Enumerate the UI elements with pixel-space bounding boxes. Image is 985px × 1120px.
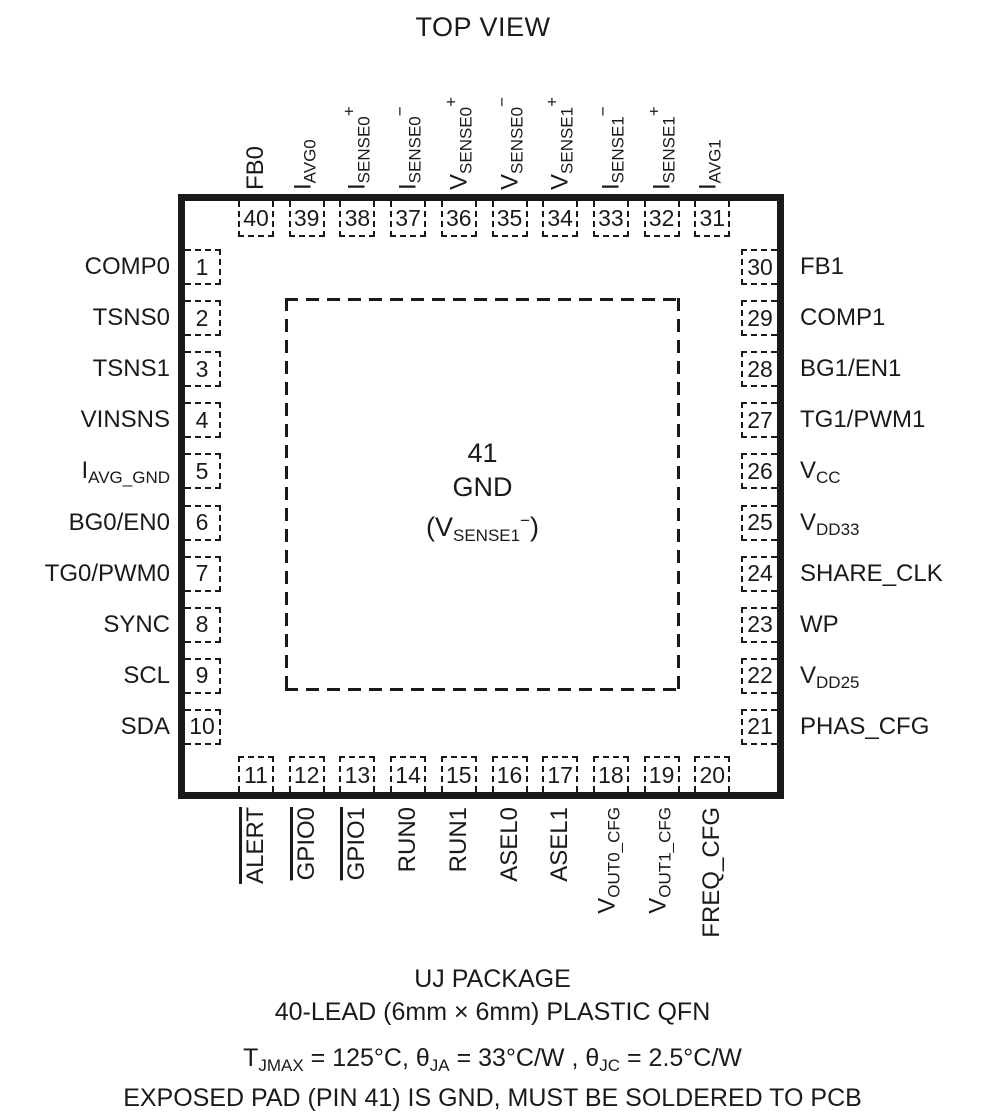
pin-number: 14 [395, 762, 421, 789]
pin-label: IAVG0 [291, 139, 322, 190]
label-part: SYNC [103, 611, 170, 638]
label-part: V [800, 457, 816, 484]
pin-number: 28 [747, 356, 773, 383]
label-part: ALERT [242, 807, 269, 884]
label-part: V [644, 898, 671, 914]
pin-box: 15 [441, 756, 477, 792]
pin-label: BG1/EN1 [800, 353, 984, 385]
pin-label: RUN0 [396, 807, 420, 872]
pin-box: 39 [289, 201, 325, 237]
label-part: ASEL0 [496, 807, 523, 882]
label-part: SHARE_CLK [800, 560, 943, 587]
pin-number: 25 [747, 509, 773, 536]
pin-box: 25 [741, 505, 777, 541]
pin-box: 34 [542, 201, 578, 237]
pin-label: VOUT0_CFG [595, 807, 626, 914]
pin-number: 34 [547, 205, 573, 232]
pin-box: 6 [185, 505, 221, 541]
label-part: SCL [123, 662, 170, 689]
pin-label: ISENSE1+ [642, 106, 681, 190]
pin-label: FB0 [244, 146, 268, 190]
label-part: SENSE1 [453, 526, 520, 545]
pin-number: 24 [747, 560, 773, 587]
pin-label: GPIO1 [345, 807, 369, 880]
pin-box: 7 [185, 556, 221, 592]
pin-label: WP [800, 609, 984, 641]
pin-number: 4 [196, 407, 209, 434]
label-part: − [593, 106, 612, 116]
chip-outline: 41 GND (VSENSE1−) 4039383736353433323111… [178, 194, 784, 799]
label-part: COMP1 [800, 304, 885, 331]
pin-number: 12 [294, 762, 320, 789]
exposed-pad-note: EXPOSED PAD (PIN 41) IS GND, MUST BE SOL… [0, 1082, 985, 1115]
pin-label: SYNC [0, 609, 170, 641]
pin-number: 11 [244, 762, 268, 789]
pin-box: 32 [644, 201, 680, 237]
pin-label: VOUT1_CFG [646, 807, 677, 914]
pin-number: 29 [747, 305, 773, 332]
pin-number: 37 [395, 205, 421, 232]
pin-box: 18 [593, 756, 629, 792]
pin-number: 23 [747, 611, 773, 638]
label-part: DD33 [816, 520, 859, 539]
label-part: = 2.5°C/W [620, 1044, 742, 1072]
label-part: V [496, 174, 523, 190]
exposed-pad: 41 GND (VSENSE1−) [285, 298, 680, 691]
label-part: OUT1_CFG [655, 807, 674, 898]
pin-label: ISENSE0+ [338, 106, 377, 190]
label-part: RUN1 [445, 807, 472, 872]
label-part: I [395, 183, 422, 190]
label-part: RUN0 [394, 807, 421, 872]
pin-box: 4 [185, 402, 221, 438]
label-part: SENSE0 [456, 107, 475, 174]
pin-box: 11 [238, 756, 274, 792]
label-part: SENSE1 [558, 107, 577, 174]
label-part: VINSNS [81, 406, 170, 433]
pin-label: ASEL0 [498, 807, 522, 882]
pin-box: 5 [185, 453, 221, 489]
pin-label: RUN1 [447, 807, 471, 872]
pin-number: 9 [196, 662, 209, 689]
label-part: AVG1 [706, 139, 725, 183]
pin-label: COMP1 [800, 302, 984, 334]
label-part: − [492, 97, 511, 107]
pin-box: 1 [185, 249, 221, 285]
pin-number: 36 [446, 205, 472, 232]
pin-label: TG0/PWM0 [0, 558, 170, 590]
label-part: SDA [121, 713, 170, 740]
label-part: − [520, 511, 530, 530]
qfn-pinout-figure: TOP VIEW 41 GND (VSENSE1−) 4039383736353… [0, 0, 985, 1120]
pin-box: 21 [741, 709, 777, 745]
label-part: = 33°C/W , θ [450, 1044, 600, 1072]
pin-box: 13 [339, 756, 375, 792]
pin-number: 19 [649, 762, 675, 789]
pin-box: 23 [741, 607, 777, 643]
label-part: PHAS_CFG [800, 713, 929, 740]
pin-label: BG0/EN0 [0, 507, 170, 539]
pin-label: ISENSE1− [591, 106, 630, 190]
pin-box: 24 [741, 556, 777, 592]
pin-label: IAVG_GND [0, 455, 170, 487]
label-part: TSNS1 [93, 355, 170, 382]
pin-box: 36 [441, 201, 477, 237]
label-part: AVG0 [300, 139, 319, 183]
label-part: GPIO0 [293, 807, 320, 880]
pin-label: SCL [0, 660, 170, 692]
pin-label: ASEL1 [548, 807, 572, 882]
label-part: OUT0_CFG [604, 807, 623, 898]
pin-number: 32 [649, 205, 675, 232]
label-part: SENSE0 [355, 116, 374, 183]
label-part: V [547, 174, 574, 190]
label-part: + [644, 106, 663, 116]
pin-number: 26 [747, 458, 773, 485]
pin-label: PHAS_CFG [800, 711, 984, 743]
pin-label: VDD25 [800, 660, 984, 692]
pin-label: VINSNS [0, 404, 170, 436]
pin-box: 14 [390, 756, 426, 792]
pin-number: 2 [196, 305, 209, 332]
label-part: V [800, 509, 816, 536]
label-part: I [289, 183, 316, 190]
label-part: JA [430, 1056, 450, 1075]
label-part: JMAX [258, 1056, 303, 1075]
pin-number: 39 [294, 205, 320, 232]
pin-number: 5 [196, 458, 209, 485]
pin-number: 33 [598, 205, 624, 232]
pin-box: 3 [185, 351, 221, 387]
pin-label: SHARE_CLK [800, 558, 984, 590]
pin-label: VDD33 [800, 507, 984, 539]
thermal-specs: TJMAX = 125°C, θJA = 33°C/W , θJC = 2.5°… [0, 1042, 985, 1082]
pin-label: TG1/PWM1 [800, 404, 984, 436]
pin-label: VSENSE1+ [541, 97, 580, 190]
label-part: I [344, 183, 371, 190]
label-part: I [648, 183, 675, 190]
label-part: BG0/EN0 [69, 509, 170, 536]
center-pin-number: 41 [467, 436, 497, 470]
pin-number: 20 [700, 762, 726, 789]
pin-box: 2 [185, 300, 221, 336]
pin-number: 21 [747, 713, 773, 740]
pin-box: 38 [339, 201, 375, 237]
pin-box: 28 [741, 351, 777, 387]
pin-box: 9 [185, 658, 221, 694]
label-part: + [340, 106, 359, 116]
label-part: V [593, 898, 620, 914]
pin-box: 30 [741, 249, 777, 285]
pin-box: 35 [492, 201, 528, 237]
package-notes: UJ PACKAGE 40-LEAD (6mm × 6mm) PLASTIC Q… [0, 963, 985, 1115]
pin-box: 20 [694, 756, 730, 792]
pin-box: 10 [185, 709, 221, 745]
label-part: I [695, 183, 722, 190]
pin-number: 3 [196, 356, 209, 383]
center-pin-alt-name: (VSENSE1−) [426, 504, 539, 553]
pin-number: 13 [345, 762, 371, 789]
pin-number: 22 [747, 662, 773, 689]
pin-box: 37 [390, 201, 426, 237]
label-part: (V [426, 512, 453, 542]
label-part: TSNS0 [93, 304, 170, 331]
top-view-title: TOP VIEW [0, 12, 966, 43]
pin-number: 38 [345, 205, 371, 232]
spacer [0, 1029, 985, 1042]
pin-number: 15 [446, 762, 472, 789]
pin-box: 31 [694, 201, 730, 237]
label-part: AVG_GND [88, 468, 170, 487]
pin-label: TSNS1 [0, 353, 170, 385]
pin-label: ALERT [244, 807, 268, 884]
pin-number: 27 [747, 407, 773, 434]
label-part: = 125°C, θ [304, 1044, 430, 1072]
label-part: − [391, 106, 410, 116]
pin-label: GPIO0 [295, 807, 319, 880]
package-name: UJ PACKAGE [0, 963, 985, 996]
pin-box: 12 [289, 756, 325, 792]
pin-box: 33 [593, 201, 629, 237]
label-part: CC [816, 468, 841, 487]
pin-number: 7 [196, 560, 209, 587]
pin-box: 27 [741, 402, 777, 438]
pin-label: COMP0 [0, 251, 170, 283]
pin-label: IAVG1 [697, 139, 728, 190]
pin-number: 40 [243, 205, 269, 232]
pin-number: 16 [497, 762, 523, 789]
label-part: SENSE1 [659, 116, 678, 183]
pin-box: 26 [741, 453, 777, 489]
pin-number: 1 [196, 254, 209, 281]
label-part: SENSE0 [507, 107, 526, 174]
pin-box: 29 [741, 300, 777, 336]
pin-label: VSENSE0+ [439, 97, 478, 190]
label-part: FREQ_CFG [698, 807, 725, 938]
pin-box: 17 [542, 756, 578, 792]
package-description: 40-LEAD (6mm × 6mm) PLASTIC QFN [0, 996, 985, 1029]
label-part: FB0 [242, 146, 269, 190]
label-part: TG0/PWM0 [45, 560, 170, 587]
label-part: V [445, 174, 472, 190]
label-part: JC [599, 1056, 620, 1075]
label-part: TG1/PWM1 [800, 406, 925, 433]
pin-label: VSENSE0− [490, 97, 529, 190]
pin-number: 6 [196, 509, 209, 536]
pin-box: 40 [238, 201, 274, 237]
pin-box: 16 [492, 756, 528, 792]
center-pin-name: GND [453, 470, 513, 504]
label-part: + [543, 97, 562, 107]
label-part: I [597, 183, 624, 190]
pin-label: FB1 [800, 251, 984, 283]
pin-label: SDA [0, 711, 170, 743]
pin-number: 35 [497, 205, 523, 232]
pin-box: 19 [644, 756, 680, 792]
pin-number: 31 [700, 205, 726, 232]
pin-label: ISENSE0− [389, 106, 428, 190]
pin-label: VCC [800, 455, 984, 487]
pin-number: 8 [196, 611, 209, 638]
label-part: SENSE0 [406, 116, 425, 183]
pin-number: 10 [189, 713, 215, 740]
pin-number: 30 [747, 254, 773, 281]
label-part: + [441, 97, 460, 107]
pin-number: 18 [598, 762, 624, 789]
pin-box: 22 [741, 658, 777, 694]
pin-box: 8 [185, 607, 221, 643]
label-part: T [243, 1044, 258, 1072]
label-part: SENSE1 [608, 116, 627, 183]
label-part: GPIO1 [343, 807, 370, 880]
label-part: ASEL1 [546, 807, 573, 882]
label-part: DD25 [816, 673, 859, 692]
label-part: BG1/EN1 [800, 355, 901, 382]
pin-label: FREQ_CFG [700, 807, 724, 938]
pin-label: TSNS0 [0, 302, 170, 334]
pin-number: 17 [547, 762, 573, 789]
label-part: ) [530, 512, 539, 542]
label-part: COMP0 [85, 253, 170, 280]
label-part: FB1 [800, 253, 844, 280]
label-part: WP [800, 611, 839, 638]
label-part: V [800, 662, 816, 689]
